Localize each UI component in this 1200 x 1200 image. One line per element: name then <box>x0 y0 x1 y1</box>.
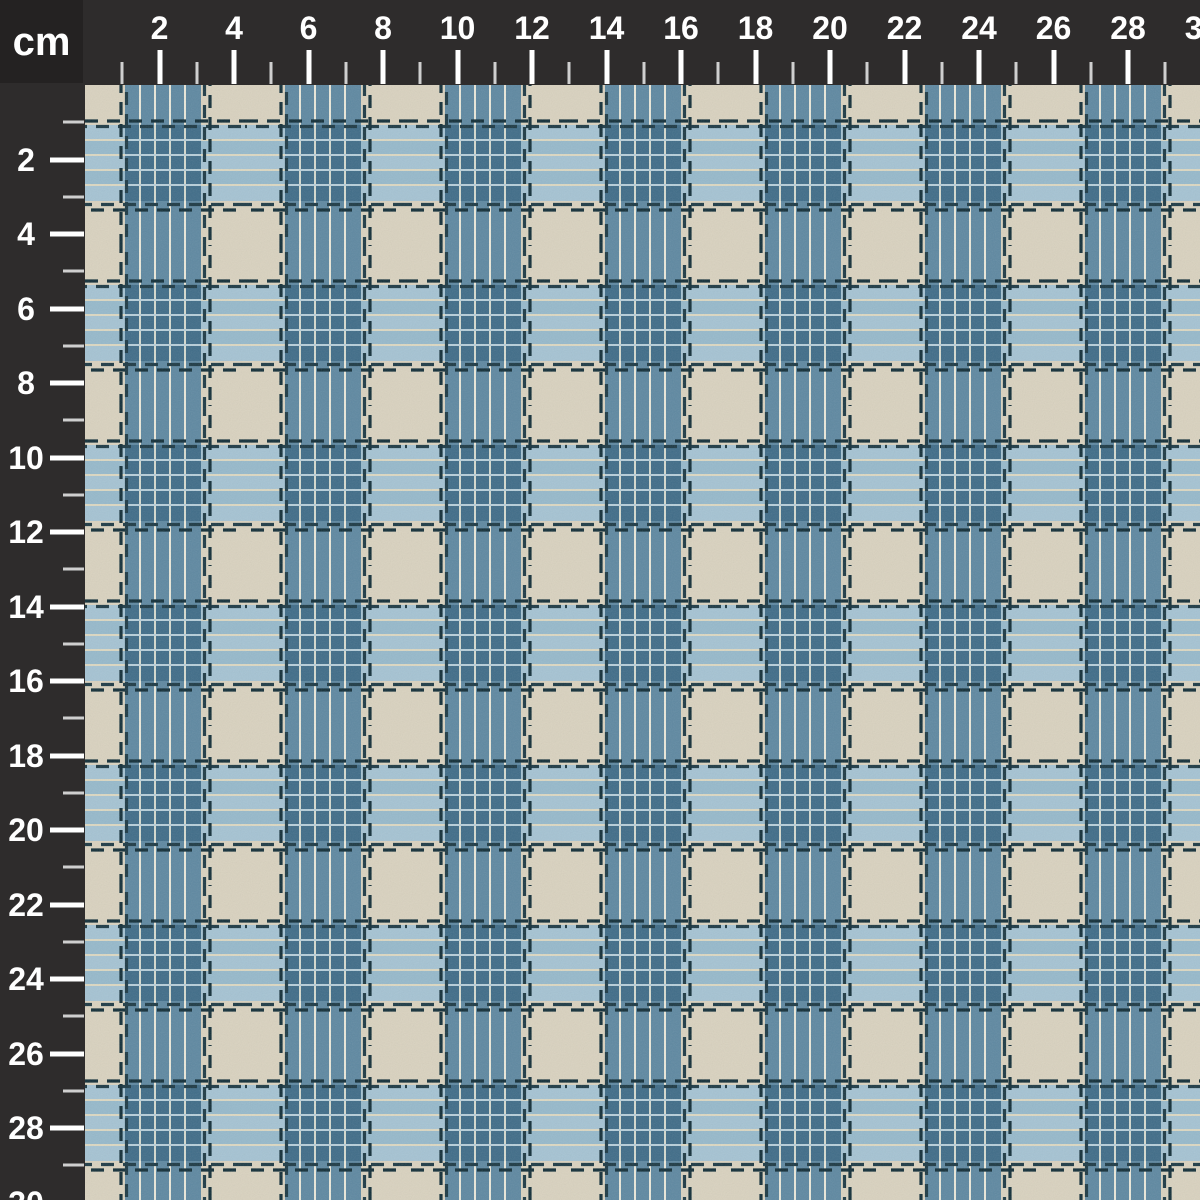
ruler-number: 14 <box>8 591 44 623</box>
ruler-tick-major <box>604 50 609 84</box>
ruler-tick-major <box>306 50 311 84</box>
ruler-number: 12 <box>514 12 550 44</box>
ruler-tick-major <box>50 977 84 982</box>
ruler-tick-minor <box>63 866 84 869</box>
ruler-number: 14 <box>589 12 625 44</box>
ruler-tick-minor <box>493 62 496 84</box>
ruler-number: 22 <box>8 889 44 921</box>
ruler-tick-minor <box>419 62 422 84</box>
ruler-number: 30 <box>1185 12 1200 44</box>
ruler-tick-minor <box>63 791 84 794</box>
ruler-tick-minor <box>1015 62 1018 84</box>
ruler-number: 4 <box>17 218 35 250</box>
ruler-tick-major <box>1126 50 1131 84</box>
ruler-tick-major <box>50 828 84 833</box>
ruler-number: 12 <box>8 516 44 548</box>
ruler-tick-major <box>232 50 237 84</box>
ruler-tick-major <box>679 50 684 84</box>
ruler-tick-major <box>50 455 84 460</box>
ruler-number: 16 <box>8 665 44 697</box>
ruler-tick-major <box>50 232 84 237</box>
fabric-swatch <box>85 85 1200 1200</box>
ruler-number: 18 <box>8 740 44 772</box>
ruler-number: 16 <box>663 12 699 44</box>
ruler-tick-minor <box>717 62 720 84</box>
ruler-tick-major <box>50 604 84 609</box>
ruler-tick-minor <box>344 62 347 84</box>
ruler-tick-minor <box>63 940 84 943</box>
ruler-tick-minor <box>63 1015 84 1018</box>
ruler-tick-major <box>50 306 84 311</box>
ruler-tick-major <box>50 1051 84 1056</box>
ruler-number: 26 <box>8 1038 44 1070</box>
linen-grain-texture <box>85 85 1200 1200</box>
ruler-top: 24681012141618202224262830 <box>0 0 1200 85</box>
ruler-tick-major <box>50 381 84 386</box>
ruler-tick-major <box>50 902 84 907</box>
ruler-number: 24 <box>8 963 44 995</box>
ruler-number: 28 <box>1110 12 1146 44</box>
ruler-tick-minor <box>642 62 645 84</box>
ruler-left: 24681012141618202224262830 <box>0 0 85 1200</box>
ruler-number: 26 <box>1036 12 1072 44</box>
plaid-fabric-image <box>85 85 1200 1200</box>
fabric-scale-preview: 24681012141618202224262830 2468101214161… <box>0 0 1200 1200</box>
ruler-number: 6 <box>300 12 318 44</box>
ruler-number: 28 <box>8 1112 44 1144</box>
ruler-number: 10 <box>8 442 44 474</box>
ruler-tick-major <box>1051 50 1056 84</box>
ruler-tick-minor <box>63 1164 84 1167</box>
ruler-tick-major <box>902 50 907 84</box>
ruler-tick-minor <box>791 62 794 84</box>
ruler-tick-minor <box>63 121 84 124</box>
ruler-tick-minor <box>63 419 84 422</box>
ruler-tick-minor <box>63 717 84 720</box>
ruler-unit-label: cm <box>0 0 83 83</box>
ruler-tick-minor <box>63 195 84 198</box>
ruler-tick-minor <box>940 62 943 84</box>
ruler-number: 4 <box>225 12 243 44</box>
ruler-tick-minor <box>63 568 84 571</box>
ruler-tick-major <box>828 50 833 84</box>
ruler-tick-major <box>157 50 162 84</box>
ruler-tick-minor <box>63 270 84 273</box>
ruler-number: 24 <box>961 12 997 44</box>
ruler-tick-minor <box>63 344 84 347</box>
ruler-tick-minor <box>195 62 198 84</box>
ruler-tick-minor <box>63 493 84 496</box>
ruler-number: 20 <box>8 814 44 846</box>
ruler-tick-minor <box>1089 62 1092 84</box>
ruler-tick-major <box>50 157 84 162</box>
ruler-number: 6 <box>17 293 35 325</box>
ruler-number: 2 <box>151 12 169 44</box>
ruler-tick-major <box>50 530 84 535</box>
ruler-number: 8 <box>374 12 392 44</box>
ruler-number: 2 <box>17 144 35 176</box>
ruler-tick-major <box>50 679 84 684</box>
ruler-tick-major <box>50 753 84 758</box>
ruler-tick-minor <box>270 62 273 84</box>
ruler-tick-major <box>381 50 386 84</box>
ruler-tick-minor <box>1164 62 1167 84</box>
ruler-tick-minor <box>63 642 84 645</box>
ruler-number: 30 <box>8 1187 44 1200</box>
ruler-tick-major <box>50 1126 84 1131</box>
unit-label-text: cm <box>13 22 71 62</box>
ruler-tick-minor <box>63 1089 84 1092</box>
ruler-number: 8 <box>17 367 35 399</box>
ruler-tick-major <box>753 50 758 84</box>
ruler-tick-minor <box>568 62 571 84</box>
ruler-tick-major <box>977 50 982 84</box>
ruler-tick-minor <box>866 62 869 84</box>
ruler-tick-minor <box>121 62 124 84</box>
ruler-tick-major <box>530 50 535 84</box>
ruler-number: 18 <box>738 12 774 44</box>
ruler-tick-major <box>455 50 460 84</box>
ruler-number: 10 <box>440 12 476 44</box>
ruler-number: 22 <box>887 12 923 44</box>
ruler-number: 20 <box>812 12 848 44</box>
